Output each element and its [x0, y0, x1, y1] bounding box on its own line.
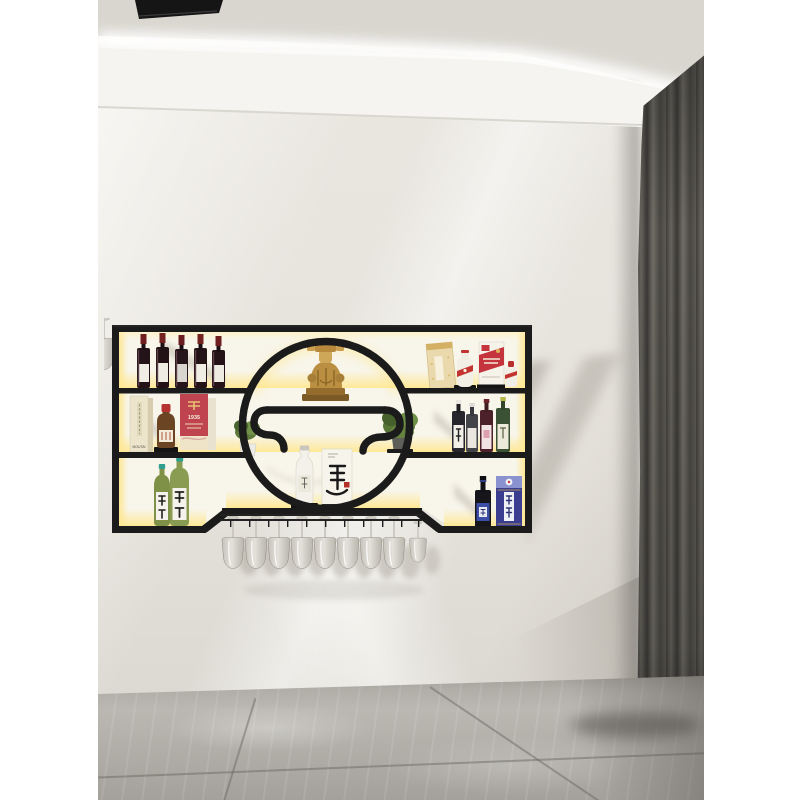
- curtain-floor-shadow: [570, 712, 700, 738]
- stemware-rails: [220, 514, 422, 527]
- gold-gift-box: [426, 342, 456, 389]
- wine-glass: [337, 516, 359, 568]
- wine-glass: [291, 516, 313, 568]
- wine-glass: [268, 516, 290, 568]
- ceiling: [98, 0, 704, 140]
- floor-shadow-right: [544, 676, 704, 800]
- moutai-1935-red-box: 1935: [180, 394, 216, 450]
- wine-glass: [222, 516, 244, 568]
- box-1935-text: 1935: [188, 415, 200, 421]
- wine-rack: MOUTAI 1935: [104, 318, 540, 618]
- dong-liquor-box: [322, 449, 352, 508]
- curtain-cast-shadow: [614, 70, 640, 700]
- product-photo: MOUTAI 1935: [0, 0, 800, 800]
- marble-floor: [98, 676, 704, 800]
- red-moutai-box: [477, 342, 505, 389]
- champagne-glass: [409, 521, 426, 562]
- curtain: [636, 50, 704, 730]
- moutai-cream-box: MOUTAI: [130, 396, 153, 452]
- tile-grout-line: [222, 698, 257, 800]
- photo-area: MOUTAI 1935: [98, 0, 704, 800]
- laimao-blue-box: [496, 476, 522, 528]
- wine-glass: [245, 516, 267, 568]
- moutai-box-text: MOUTAI: [133, 445, 146, 449]
